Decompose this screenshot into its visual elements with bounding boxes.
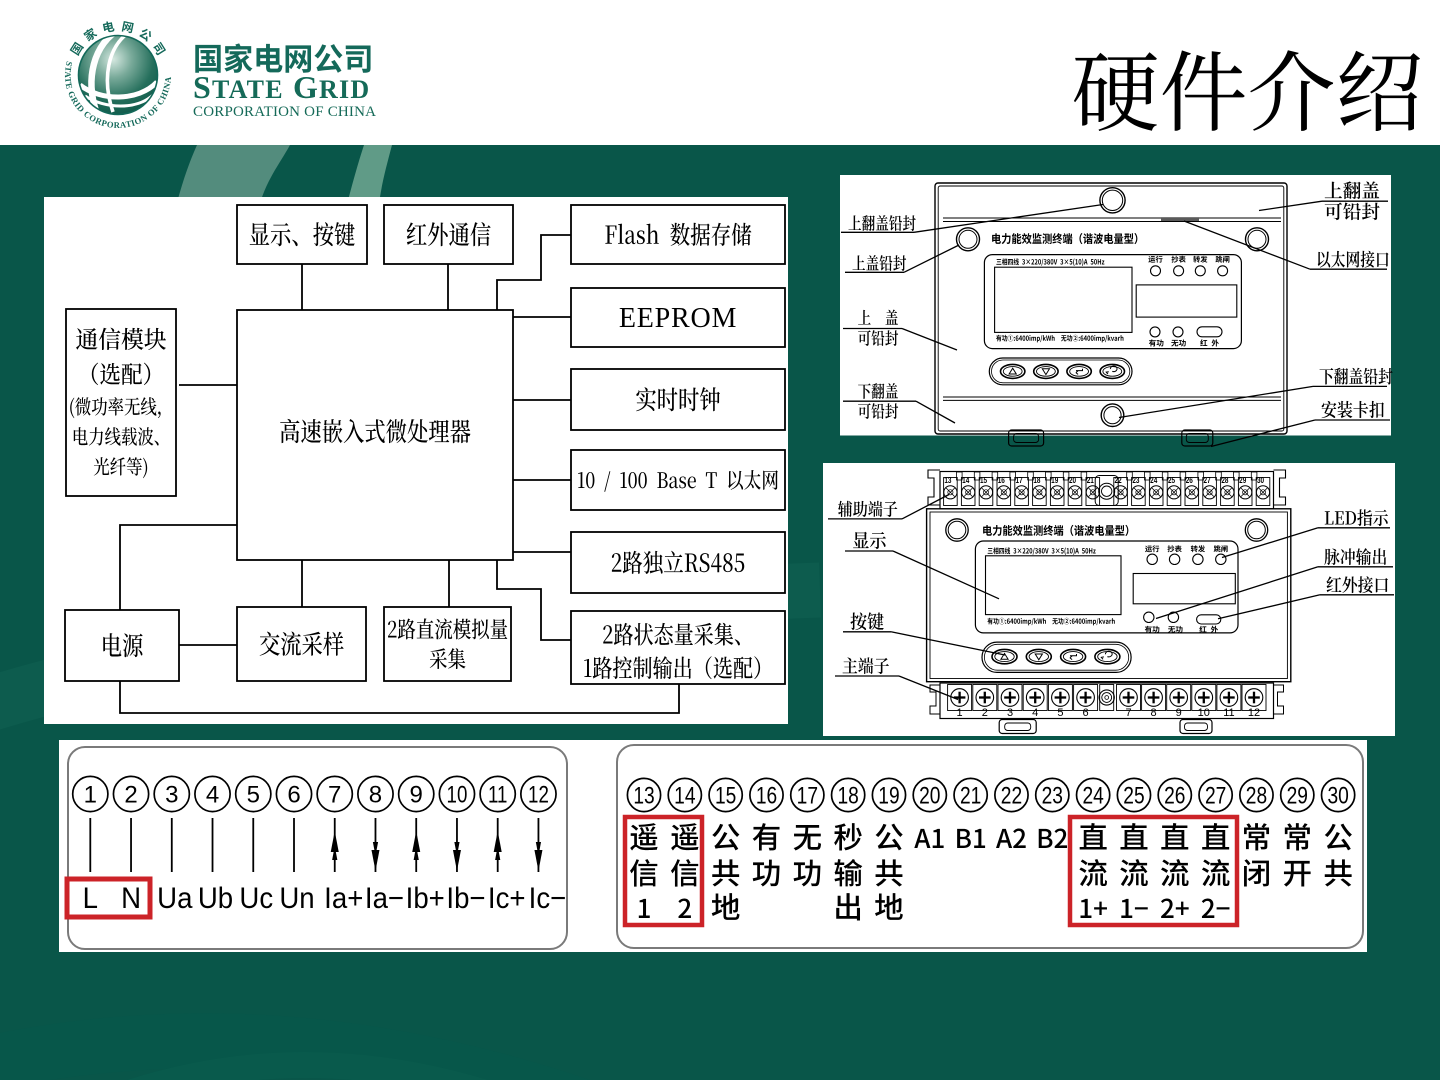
svg-text:2: 2: [124, 782, 137, 809]
svg-text:7: 7: [328, 782, 341, 809]
svg-text:18: 18: [837, 781, 858, 809]
svg-text:Ic+: Ic+: [488, 882, 526, 915]
svg-text:Ic−: Ic−: [529, 882, 567, 915]
svg-text:Un: Un: [279, 882, 314, 915]
svg-text:24: 24: [1150, 475, 1157, 485]
svg-text:Ub: Ub: [198, 882, 233, 915]
svg-text:14: 14: [962, 475, 969, 485]
svg-text:Uc: Uc: [239, 882, 273, 915]
svg-text:25: 25: [1168, 475, 1175, 485]
svg-text:30: 30: [1327, 781, 1348, 809]
svg-text:EEPROM: EEPROM: [619, 303, 737, 334]
svg-text:12: 12: [528, 781, 549, 808]
svg-text:15: 15: [715, 781, 736, 809]
svg-text:12: 12: [1248, 707, 1260, 719]
svg-text:21: 21: [960, 781, 981, 809]
svg-text:5: 5: [247, 782, 260, 809]
svg-text:1: 1: [84, 782, 97, 809]
svg-text:7: 7: [1125, 707, 1131, 719]
svg-text:21: 21: [1087, 475, 1094, 485]
svg-text:2: 2: [982, 707, 988, 719]
svg-text:Ib+: Ib+: [406, 882, 445, 915]
svg-text:Ua: Ua: [157, 882, 193, 915]
svg-text:18: 18: [1033, 475, 1040, 485]
svg-text:11: 11: [488, 781, 507, 808]
svg-text:17: 17: [797, 781, 818, 809]
svg-text:19: 19: [1051, 475, 1058, 485]
svg-text:9: 9: [410, 782, 423, 809]
svg-text:N: N: [121, 882, 141, 915]
svg-text:Ib−: Ib−: [446, 882, 485, 915]
svg-text:20: 20: [919, 781, 940, 809]
svg-text:STATE GRID: STATE GRID: [193, 69, 370, 105]
svg-text:27: 27: [1204, 475, 1211, 485]
svg-text:6: 6: [287, 782, 300, 809]
svg-text:1: 1: [957, 707, 963, 719]
svg-text:4: 4: [206, 782, 219, 809]
svg-text:28: 28: [1221, 475, 1228, 485]
svg-text:CORPORATION OF CHINA: CORPORATION OF CHINA: [193, 104, 376, 120]
svg-text:14: 14: [674, 781, 695, 809]
svg-text:17: 17: [1016, 475, 1023, 485]
svg-text:29: 29: [1287, 781, 1308, 809]
svg-text:10: 10: [447, 781, 468, 808]
svg-text:22: 22: [1001, 781, 1022, 809]
svg-text:3: 3: [165, 782, 178, 809]
svg-text:25: 25: [1123, 781, 1144, 809]
svg-text:L: L: [83, 882, 98, 915]
svg-text:10: 10: [1198, 707, 1210, 719]
svg-text:11: 11: [1223, 707, 1234, 719]
svg-text:16: 16: [756, 781, 777, 809]
svg-text:15: 15: [980, 475, 987, 485]
svg-text:3: 3: [1007, 707, 1013, 719]
svg-text:13: 13: [944, 475, 951, 485]
svg-text:13: 13: [633, 781, 654, 809]
svg-text:Ia+: Ia+: [324, 882, 363, 915]
svg-text:16: 16: [998, 475, 1005, 485]
svg-text:23: 23: [1042, 781, 1063, 809]
svg-text:4: 4: [1032, 707, 1038, 719]
svg-text:8: 8: [1151, 707, 1157, 719]
svg-text:5: 5: [1057, 707, 1063, 719]
svg-text:9: 9: [1176, 707, 1182, 719]
svg-text:8: 8: [369, 782, 382, 809]
svg-text:Ia−: Ia−: [365, 882, 404, 915]
svg-text:26: 26: [1164, 781, 1185, 809]
svg-text:30: 30: [1257, 475, 1264, 485]
svg-text:19: 19: [878, 781, 899, 809]
svg-text:29: 29: [1239, 475, 1246, 485]
svg-text:6: 6: [1083, 707, 1089, 719]
svg-text:20: 20: [1069, 475, 1076, 485]
svg-text:28: 28: [1246, 781, 1267, 809]
svg-text:27: 27: [1205, 781, 1226, 809]
svg-text:24: 24: [1082, 781, 1103, 809]
svg-text:26: 26: [1186, 475, 1193, 485]
svg-text:23: 23: [1132, 475, 1139, 485]
